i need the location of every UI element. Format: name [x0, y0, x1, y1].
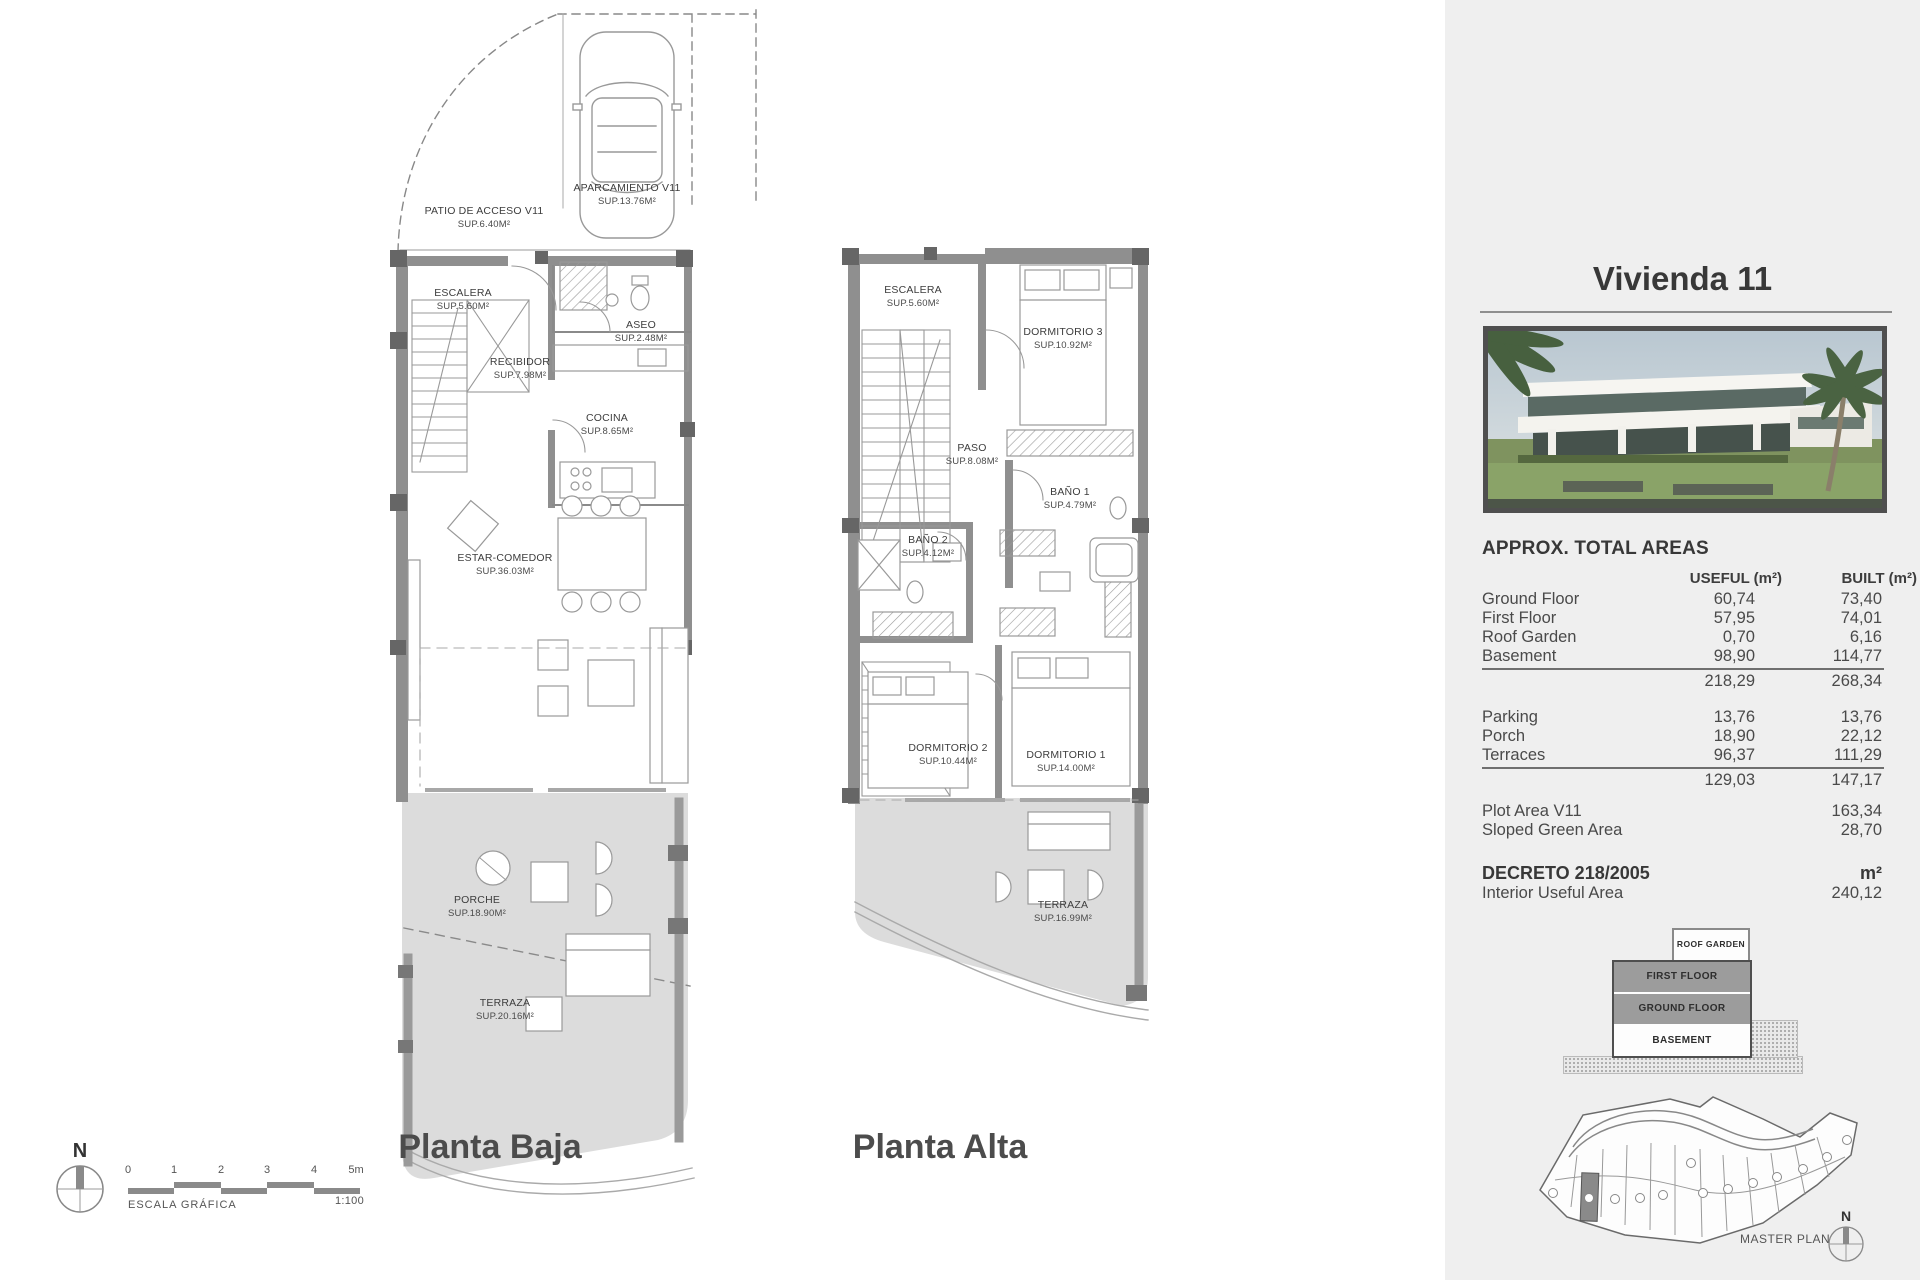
room-label: ESCALERASUP.5.60M²: [434, 287, 492, 313]
room-label: ASEOSUP.2.48M²: [615, 319, 668, 345]
room-label: PORCHESUP.18.90M²: [448, 894, 506, 920]
planta-alta-title: Planta Alta: [853, 1128, 1027, 1167]
room-label: DORMITORIO 2SUP.10.44M²: [908, 742, 987, 768]
subtotal-row: 218,29 268,34: [1482, 672, 1884, 691]
brochure-page: { "plans": { "baja": { "title": "Planta …: [0, 0, 1920, 1280]
table-row: Sloped Green Area 28,70: [1482, 821, 1884, 840]
table-header-row: USEFUL (m²) BUILT (m²): [1482, 568, 1884, 590]
master-plan-label: MASTER PLAN: [1740, 1232, 1830, 1246]
ground-hatch: [1563, 1056, 1803, 1074]
room-label: TERRAZASUP.16.99M²: [1034, 899, 1092, 925]
room-label: RECIBIDORSUP.7.98M²: [490, 356, 550, 382]
planta-baja-title: Planta Baja: [398, 1128, 581, 1167]
room-label: PASOSUP.8.08M²: [946, 442, 999, 468]
room-label: TERRAZASUP.20.16M²: [476, 997, 534, 1023]
table-row: Roof Garden 0,70 6,16: [1482, 628, 1884, 647]
room-label: DORMITORIO 1SUP.14.00M²: [1026, 749, 1105, 775]
areas-table: USEFUL (m²) BUILT (m²) Ground Floor 60,7…: [1482, 568, 1884, 903]
room-label: DORMITORIO 3SUP.10.92M²: [1023, 326, 1102, 352]
table-row: Ground Floor 60,74 73,40: [1482, 590, 1884, 609]
table-row: Parking 13,76 13,76: [1482, 708, 1884, 727]
areas-heading: APPROX. TOTAL AREAS: [1482, 538, 1709, 560]
stack-roof-box: ROOF GARDEN: [1672, 928, 1750, 962]
table-row: Terraces 96,37 111,29: [1482, 746, 1884, 765]
scale-label: ESCALA GRÁFICA: [128, 1199, 237, 1211]
scale-bar: 0 1 2 3 4 5m ESCALA GRÁFICA 1:100: [128, 1164, 360, 1216]
planta-alta-drawing: [842, 247, 1149, 1020]
table-row: First Floor 57,95 74,01: [1482, 609, 1884, 628]
scale-ratio: 1:100: [335, 1195, 364, 1207]
subtotal-divider: [1482, 767, 1884, 769]
title-divider: [1480, 311, 1892, 313]
unit-title: Vivienda 11: [1445, 260, 1920, 298]
subtotal-row: 129,03 147,17: [1482, 771, 1884, 790]
table-row: Interior Useful Area 240,12: [1482, 884, 1884, 903]
building-render-image: [1483, 326, 1887, 513]
room-label: COCINASUP.8.65M²: [581, 412, 634, 438]
floorplans-drawing: [0, 0, 1450, 1280]
table-row: Basement 98,90 114,77: [1482, 647, 1884, 666]
room-label: ESTAR-COMEDORSUP.36.03M²: [457, 552, 552, 578]
subtotal-divider: [1482, 668, 1884, 670]
stack-main-box: FIRST FLOOR GROUND FLOOR BASEMENT: [1612, 960, 1752, 1058]
room-label: ESCALERASUP.5.60M²: [884, 284, 942, 310]
ground-step-hatch: [1750, 1020, 1798, 1058]
room-label: BAÑO 1SUP.4.79M²: [1044, 486, 1097, 512]
info-sidebar: Vivienda 11: [1445, 0, 1920, 1280]
decreto-row: DECRETO 218/2005 m²: [1482, 862, 1884, 884]
room-label: PATIO DE ACCESO V11SUP.6.40M²: [425, 205, 544, 231]
table-row: Plot Area V11 163,34: [1482, 802, 1884, 821]
room-label: BAÑO 2SUP.4.12M²: [902, 534, 955, 560]
table-row: Porch 18,90 22,12: [1482, 727, 1884, 746]
room-label: APARCAMIENTO V11SUP.13.76M²: [573, 182, 680, 208]
col-built: BUILT (m²): [1482, 568, 1917, 590]
